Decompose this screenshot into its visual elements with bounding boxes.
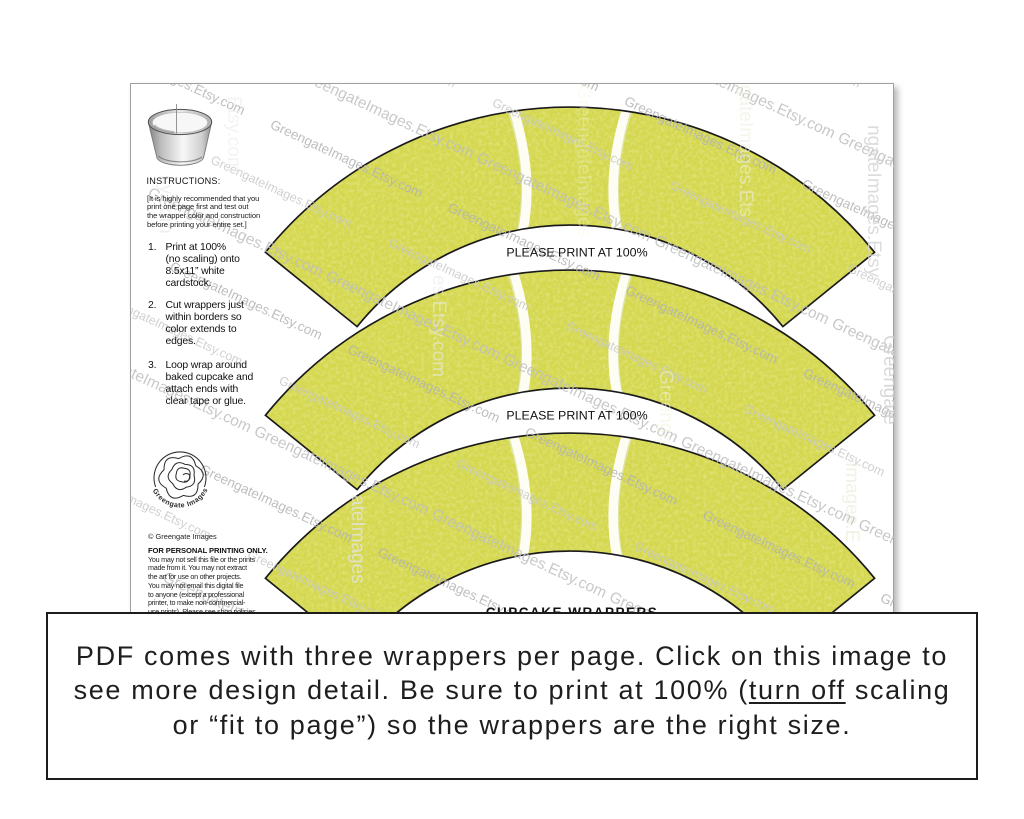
svg-text:GreengateImages: GreengateImages [573, 85, 594, 237]
svg-text:PLEASE PRINT AT 100%: PLEASE PRINT AT 100% [506, 409, 647, 423]
svg-text:GreengateImages.Etsy.com: GreengateImages.Etsy.com [864, 84, 894, 101]
svg-text:PLEASE PRINT AT 100%: PLEASE PRINT AT 100% [506, 246, 647, 260]
svg-text:es.Etsy.com: es.Etsy.com [428, 275, 449, 377]
svg-text:gateImages.Ets: gateImages.Ets [735, 85, 756, 217]
svg-text:Greenga: Greenga [655, 370, 676, 444]
svg-text:Etsy.com: Etsy.com [223, 96, 244, 173]
svg-text:Greengate: Greengate [879, 335, 894, 425]
svg-text:Images.E: Images.E [841, 462, 862, 542]
svg-text:ngateImages.Etsy: ngateImages.Etsy [863, 125, 884, 278]
svg-text:ateImages: ateImages [347, 495, 368, 584]
